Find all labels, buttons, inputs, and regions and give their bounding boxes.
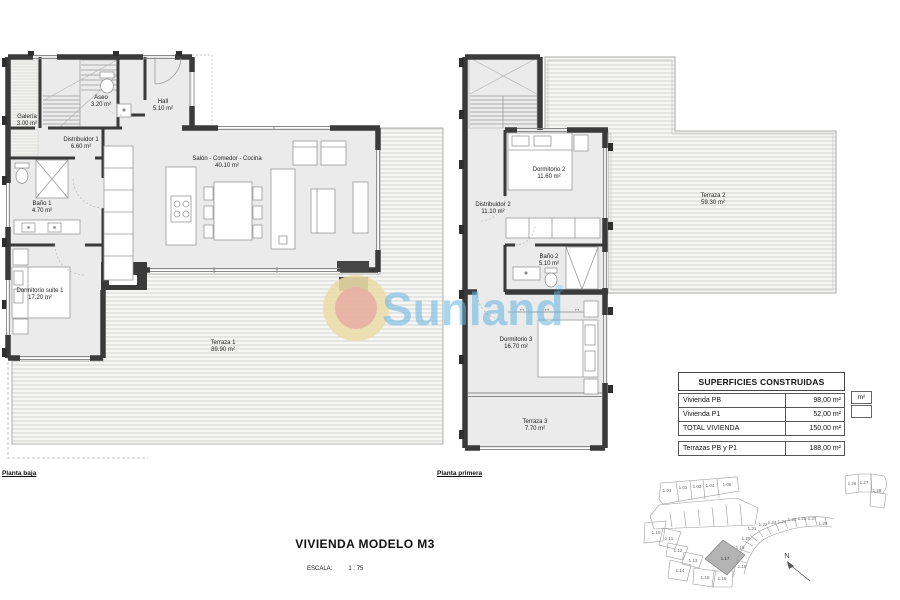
room-label-terraza3: Terraza 37.70 m² <box>522 419 547 433</box>
plot-label: 1.16 <box>718 576 727 581</box>
room-label-bano2: Baño 25.10 m² <box>539 254 559 268</box>
sliding-door-arrow-icon: ↔ <box>544 306 551 313</box>
plot-label: 1.28 <box>819 521 828 526</box>
highlighted-plot-label: 1.17 <box>721 556 730 561</box>
plot-label: 1.22 <box>759 522 768 527</box>
scale-value: 1 : 75 <box>348 566 363 572</box>
plot-label: 1.10 <box>652 530 661 535</box>
room-label-terraza1: Terraza 189.90 m² <box>210 340 235 354</box>
plot-label: 1.21 <box>748 526 757 531</box>
north-indicator: N <box>784 551 789 560</box>
scale-note: ESCALA:1 : 75 <box>307 566 363 572</box>
room-label-dormitorio2: Dormitorio 211.60 m² <box>533 167 566 181</box>
plot-label: 1.19 <box>736 545 745 550</box>
room-label-dormitorio-suite1: Dormitorio suite 117.20 m² <box>16 288 63 302</box>
sliding-door-arrow-icon: ↔ <box>519 306 526 313</box>
sheet-title: VIVIENDA MODELO M3 <box>250 537 480 551</box>
clipped-table-fragment: m² <box>851 391 872 418</box>
plot-label: 1.01 <box>663 488 672 493</box>
plot-label: 1.27 <box>808 516 817 521</box>
plot-label: 1.02 <box>679 485 688 490</box>
plot-label: 1.03 <box>693 484 702 489</box>
plot-label: 1.23 <box>768 520 777 525</box>
planta-baja-plan <box>2 51 443 458</box>
plot-label: 1.12 <box>674 548 683 553</box>
areas-table-header: SUPERFICIES CONSTRUIDAS <box>678 372 845 391</box>
sliding-door-arrow-icon: ↔ <box>574 306 581 313</box>
plot-label: 1.26 <box>848 481 857 486</box>
room-label-hall: Hall5.10 m² <box>153 99 173 113</box>
plot-label: 1.13 <box>689 558 698 563</box>
plot-label: 1.26 <box>798 516 807 521</box>
plot-label: 1.20 <box>742 536 751 541</box>
plot-label: 1.28 <box>873 488 882 493</box>
table-row: TOTAL VIVIENDA 150,00 m² <box>679 422 844 435</box>
drawing-sheet: ↔ ↔ ↔ 1.01 1.02 <box>0 0 900 600</box>
plot-label: 1.18 <box>738 564 747 569</box>
plot-label: 1.14 <box>676 568 685 573</box>
room-label-distribuidor2: Distribuidor 211.10 m² <box>475 202 510 216</box>
plot-label: 1.24 <box>778 519 787 524</box>
areas-table: SUPERFICIES CONSTRUIDAS Vivienda PB 98,0… <box>678 372 845 456</box>
room-label-salon: Salón - Comedor - Cocina40.10 m² <box>192 156 261 170</box>
caption-planta-baja: Planta baja <box>2 470 36 477</box>
table-row: Vivienda PB 98,00 m² <box>679 394 844 408</box>
scale-label: ESCALA: <box>307 566 332 572</box>
site-plan: 1.01 1.02 1.03 1.04 1.05 1.10 1.11 1.12 … <box>644 474 887 587</box>
room-label-bano1: Baño 14.70 m² <box>32 201 52 215</box>
plot-label: 1.11 <box>665 536 674 541</box>
room-label-terraza2: Terraza 259.30 m² <box>700 193 725 207</box>
plot-label: 1.05 <box>723 482 732 487</box>
plot-label: 1.25 <box>788 517 797 522</box>
caption-planta-primera: Planta primera <box>437 470 482 477</box>
room-label-aseo: Aseo3.20 m² <box>91 95 111 109</box>
plot-label: 1.15 <box>701 575 710 580</box>
floor-plan-drawing: ↔ ↔ ↔ 1.01 1.02 <box>0 0 900 600</box>
room-label-dormitorio3: Dormitorio 316.70 m² <box>500 337 533 351</box>
room-label-distribuidor1: Distribuidor 16.60 m² <box>63 137 98 151</box>
plot-label: 1.27 <box>860 480 869 485</box>
room-label-galeria: Galería3.00 m² <box>17 114 37 128</box>
plot-label: 1.04 <box>706 483 715 488</box>
table-row: Vivienda P1 52,00 m² <box>679 408 844 422</box>
table-row-terrazas: Terrazas PB y P1 188,00 m² <box>679 442 844 455</box>
